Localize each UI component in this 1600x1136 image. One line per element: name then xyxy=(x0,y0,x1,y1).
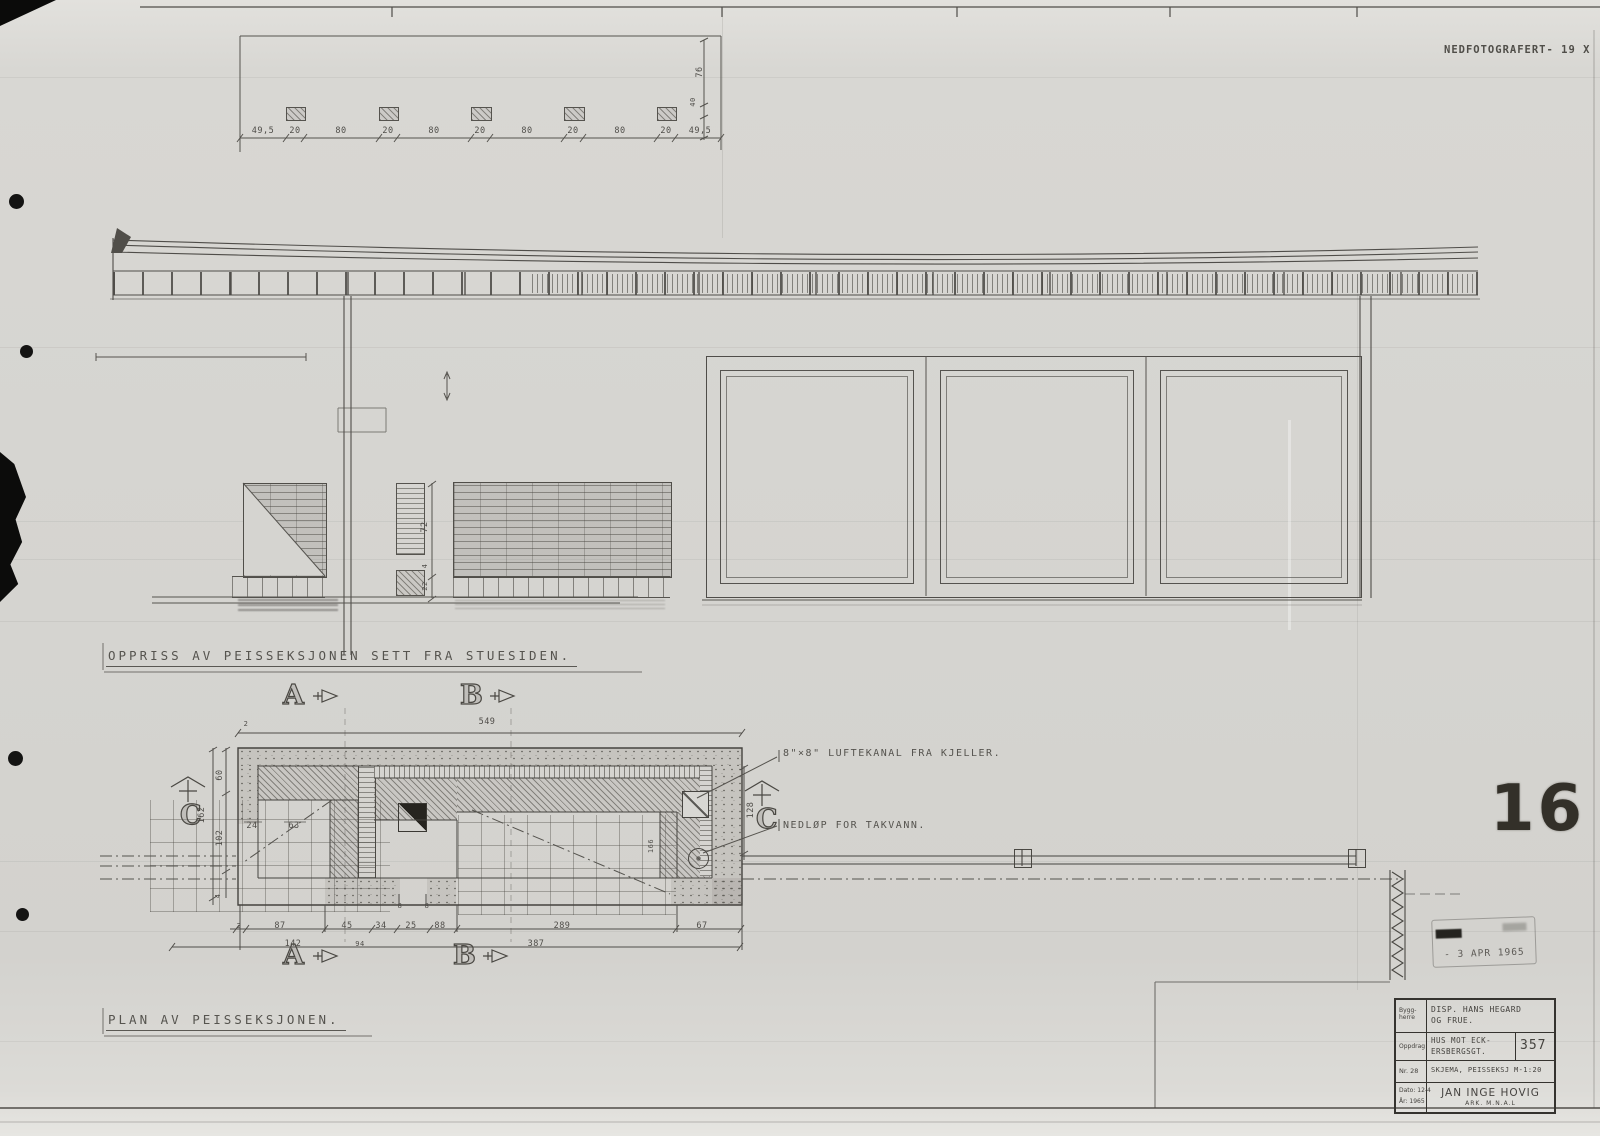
plan-outline xyxy=(238,748,742,905)
architect-title: ARK. M.N.A.L xyxy=(1427,1100,1554,1107)
project-label: Oppdrag xyxy=(1399,1043,1425,1050)
centerlines xyxy=(100,708,1404,942)
sheet-title: SKJEMA, PEISSEKSJ M-1:20 xyxy=(1431,1066,1542,1074)
architect-name: JAN INGE HOVIG xyxy=(1427,1087,1554,1099)
year-label: År: 1965 xyxy=(1399,1098,1425,1105)
title-block: Bygg- herre DISP. HANS HEGARD OG FRUE. O… xyxy=(1394,998,1556,1114)
title-block-divider xyxy=(1396,1032,1554,1033)
client-label: Bygg- herre xyxy=(1399,1007,1425,1021)
top-detail-lines xyxy=(237,36,724,152)
wall-extension-lines xyxy=(742,849,1462,1108)
sheet-number-label: Nr. 28 xyxy=(1399,1067,1418,1075)
elevation-lines xyxy=(96,353,1362,605)
plan-inner-lines xyxy=(258,766,712,878)
client-value: DISP. HANS HEGARD OG FRUE. xyxy=(1431,1004,1551,1026)
title-underline-lines xyxy=(103,643,642,1036)
leader-lines xyxy=(697,750,779,853)
project-value: HUS MOT ECK- ERSBERGSGT. xyxy=(1431,1035,1513,1058)
plan-dim-lines xyxy=(169,729,748,951)
roof-lines xyxy=(110,238,1480,655)
title-block-divider xyxy=(1515,1032,1516,1060)
project-number: 357 xyxy=(1520,1038,1546,1053)
linework-overlay xyxy=(0,0,1600,1136)
title-block-divider xyxy=(1396,1060,1554,1061)
title-block-divider xyxy=(1396,1082,1554,1083)
drawing-sheet: NEDFOTOGRAFERT- 19 X 49,5 20 80 20 80 20… xyxy=(0,0,1600,1136)
roof-tip xyxy=(111,228,131,253)
column-zigzag-hatch xyxy=(1390,870,1405,980)
